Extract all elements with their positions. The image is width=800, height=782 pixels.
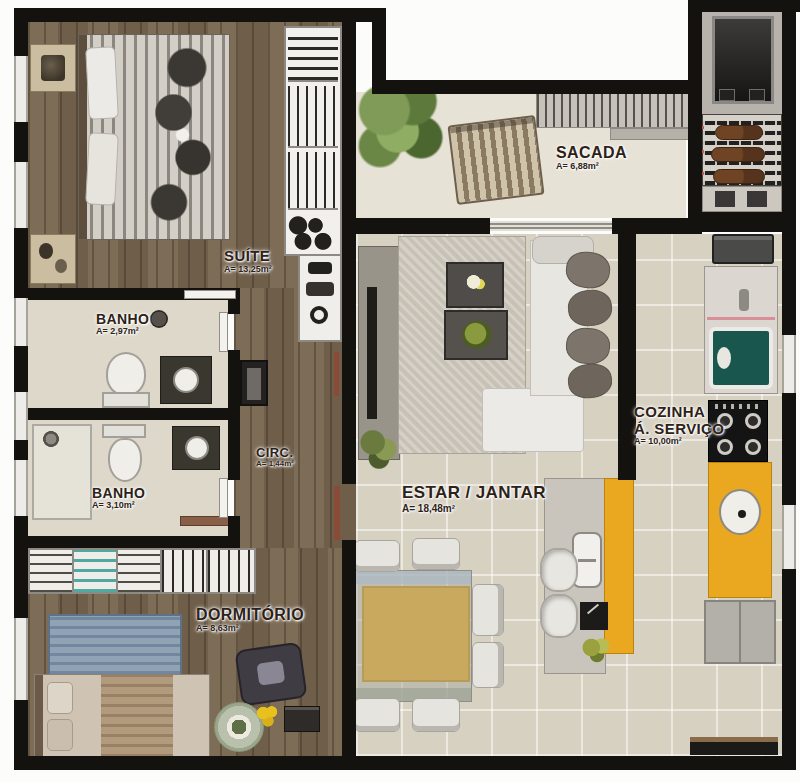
grill-shelf-box <box>715 191 735 207</box>
bedroom-rug <box>48 614 182 676</box>
sink <box>185 436 209 460</box>
wardrobe-drawer <box>30 550 74 592</box>
faucet <box>739 289 749 311</box>
flower-vase <box>256 704 280 730</box>
sink-divider <box>578 559 596 562</box>
wardrobe-hangers <box>162 550 208 592</box>
door-banho-suite <box>219 312 228 352</box>
kitchen-counter-yellow <box>708 462 772 598</box>
balcony-bench <box>447 115 544 205</box>
oven-knob <box>719 89 735 101</box>
room-label-banho-suite: BANHO A= 2,97m² <box>96 312 149 337</box>
suite-bed <box>78 34 230 240</box>
island-cooktop <box>580 602 608 630</box>
drain <box>738 510 746 518</box>
kitchen-sink <box>719 489 761 535</box>
decor-item <box>39 243 53 259</box>
floor-door-patch <box>342 484 356 542</box>
room-name: SACADA <box>556 144 627 162</box>
window <box>14 618 28 700</box>
dining-chair <box>354 540 400 572</box>
window <box>14 162 28 228</box>
decor-item <box>55 259 67 273</box>
grill-meat-skewer <box>711 147 765 162</box>
sliding-door <box>490 221 612 231</box>
room-area: A= 2,97m² <box>96 327 149 337</box>
dormitorio-wardrobe <box>28 548 256 594</box>
wall <box>612 218 690 234</box>
window <box>14 56 28 122</box>
dining-chair <box>412 698 460 732</box>
grill-meat-skewer <box>713 169 765 184</box>
dormitorio-bed <box>34 674 210 758</box>
bed-pillow <box>85 46 119 119</box>
island-plant <box>578 634 616 664</box>
room-area: A= 8,63m² <box>196 624 304 634</box>
decor-item <box>306 282 334 296</box>
dining-chair <box>472 642 504 688</box>
grill-shelf <box>702 186 782 212</box>
table-lamp <box>41 55 65 81</box>
hall-dresser <box>298 254 342 342</box>
room-name: SUÍTE <box>224 248 272 265</box>
cooktop-mark <box>587 604 599 615</box>
wall <box>28 408 228 420</box>
wall <box>228 350 240 480</box>
shower-glass <box>32 424 92 520</box>
island-counter-yellow <box>604 478 634 654</box>
wall <box>228 516 240 548</box>
rack-plant <box>358 424 400 470</box>
oven-knob <box>749 89 765 101</box>
built-in-oven <box>712 16 774 104</box>
bed-pillow <box>47 682 73 714</box>
sink <box>173 367 199 393</box>
room-label-cozinha: COZINHA Á. SERVIÇO A= 10,00m² <box>634 404 724 447</box>
counter-dark <box>690 742 778 755</box>
burner <box>745 439 761 455</box>
fridge-divider <box>739 602 741 662</box>
service-cabinet <box>712 234 774 264</box>
bed-pillow <box>85 132 119 205</box>
window <box>14 392 28 440</box>
bed-blanket <box>101 675 173 757</box>
door-frame-mark <box>334 352 339 396</box>
bathroom-vanity <box>160 356 212 404</box>
island-stool <box>540 594 578 638</box>
dining-chair <box>472 584 504 636</box>
sofa-cushion <box>565 327 611 366</box>
shower-head <box>42 430 60 448</box>
coffee-table <box>444 310 508 360</box>
room-name-line2: Á. SERVIÇO <box>634 421 724 438</box>
potted-plant <box>358 84 446 170</box>
wall <box>28 536 228 548</box>
dining-table <box>352 570 472 702</box>
toilet-tank <box>102 392 150 408</box>
floor-plan: SUÍTE A= 13,25m² BANHO A= 2,97m² BANHO A… <box>0 0 800 782</box>
grill-meat-skewer <box>715 125 763 140</box>
barbecue-grill <box>702 114 782 186</box>
plant-decor <box>462 321 492 349</box>
wardrobe-hangers <box>208 550 254 592</box>
wall <box>356 218 490 234</box>
wardrobe-shoe-rack <box>288 214 338 252</box>
suite-wardrobe <box>284 26 342 256</box>
wardrobe-hangers <box>288 152 338 210</box>
wall <box>14 756 782 770</box>
bed-pillow <box>47 719 73 751</box>
counter-trim <box>707 317 775 320</box>
pendant-light <box>150 310 168 328</box>
decor-item <box>308 262 332 274</box>
door-banho-social <box>219 478 228 518</box>
bathroom-vanity <box>172 426 220 470</box>
tv <box>367 287 377 419</box>
window <box>14 460 28 516</box>
room-label-dormitorio: DORMITÓRIO A= 8,63m² <box>196 606 304 633</box>
wardrobe-drawer <box>118 550 162 592</box>
wall <box>342 8 356 484</box>
wardrobe-hangers <box>288 86 338 148</box>
room-name: ESTAR / JANTAR <box>402 484 546 503</box>
room-area: A= 10,00m² <box>634 437 724 447</box>
room-name-line1: COZINHA <box>634 404 724 421</box>
wall <box>688 0 702 234</box>
shower-tray <box>247 368 261 400</box>
wall <box>372 80 702 94</box>
wall <box>342 540 356 756</box>
window <box>782 505 796 569</box>
wardrobe-drawer <box>74 550 118 592</box>
barbecue-counter-hatch <box>536 88 702 128</box>
window <box>782 335 796 393</box>
room-area: A= 1,44m² <box>256 460 294 469</box>
door-suite <box>184 290 236 299</box>
dining-chair <box>412 538 460 570</box>
shower-cabinet <box>240 360 268 406</box>
room-area: A= 3,10m² <box>92 501 145 511</box>
refrigerator <box>704 600 776 664</box>
room-area: A= 6,88m² <box>556 162 627 172</box>
tub-detail <box>717 347 731 369</box>
laundry-counter <box>704 266 778 394</box>
bedroom-bench <box>284 706 320 732</box>
armchair <box>234 642 307 707</box>
grill-shelf-box <box>747 191 767 207</box>
sofa-chaise <box>482 388 584 452</box>
room-label-banho-social: BANHO A= 3,10m² <box>92 486 145 511</box>
room-label-sacada: SACADA A= 6,88m² <box>556 144 627 171</box>
laundry-tub <box>709 327 773 389</box>
table-glass-edge <box>353 571 471 584</box>
room-area: A= 18,48m² <box>402 503 546 514</box>
room-label-estar-jantar: ESTAR / JANTAR A= 18,48m² <box>402 484 546 514</box>
island-stool <box>540 548 578 592</box>
door-circ-living <box>334 486 340 540</box>
burner <box>745 413 761 429</box>
nightstand <box>30 44 76 92</box>
wall <box>702 212 782 232</box>
room-area: A= 13,25m² <box>224 265 272 275</box>
room-label-circulacao: CIRC. A= 1,44m² <box>256 446 294 469</box>
room-label-suite: SUÍTE A= 13,25m² <box>224 248 272 274</box>
room-name: DORMITÓRIO <box>196 606 304 624</box>
armchair-cushion <box>256 660 285 685</box>
wall <box>14 8 386 22</box>
toilet <box>106 352 146 396</box>
nightstand <box>30 234 76 284</box>
toilet <box>108 438 142 482</box>
coffee-table <box>446 262 504 308</box>
dining-chair <box>354 698 400 732</box>
flower-decor <box>464 272 488 294</box>
bed-headboard <box>35 675 43 757</box>
toilet-tank <box>102 424 146 438</box>
decor-item <box>310 306 328 324</box>
wardrobe-shelves <box>288 30 338 82</box>
window <box>14 298 28 346</box>
